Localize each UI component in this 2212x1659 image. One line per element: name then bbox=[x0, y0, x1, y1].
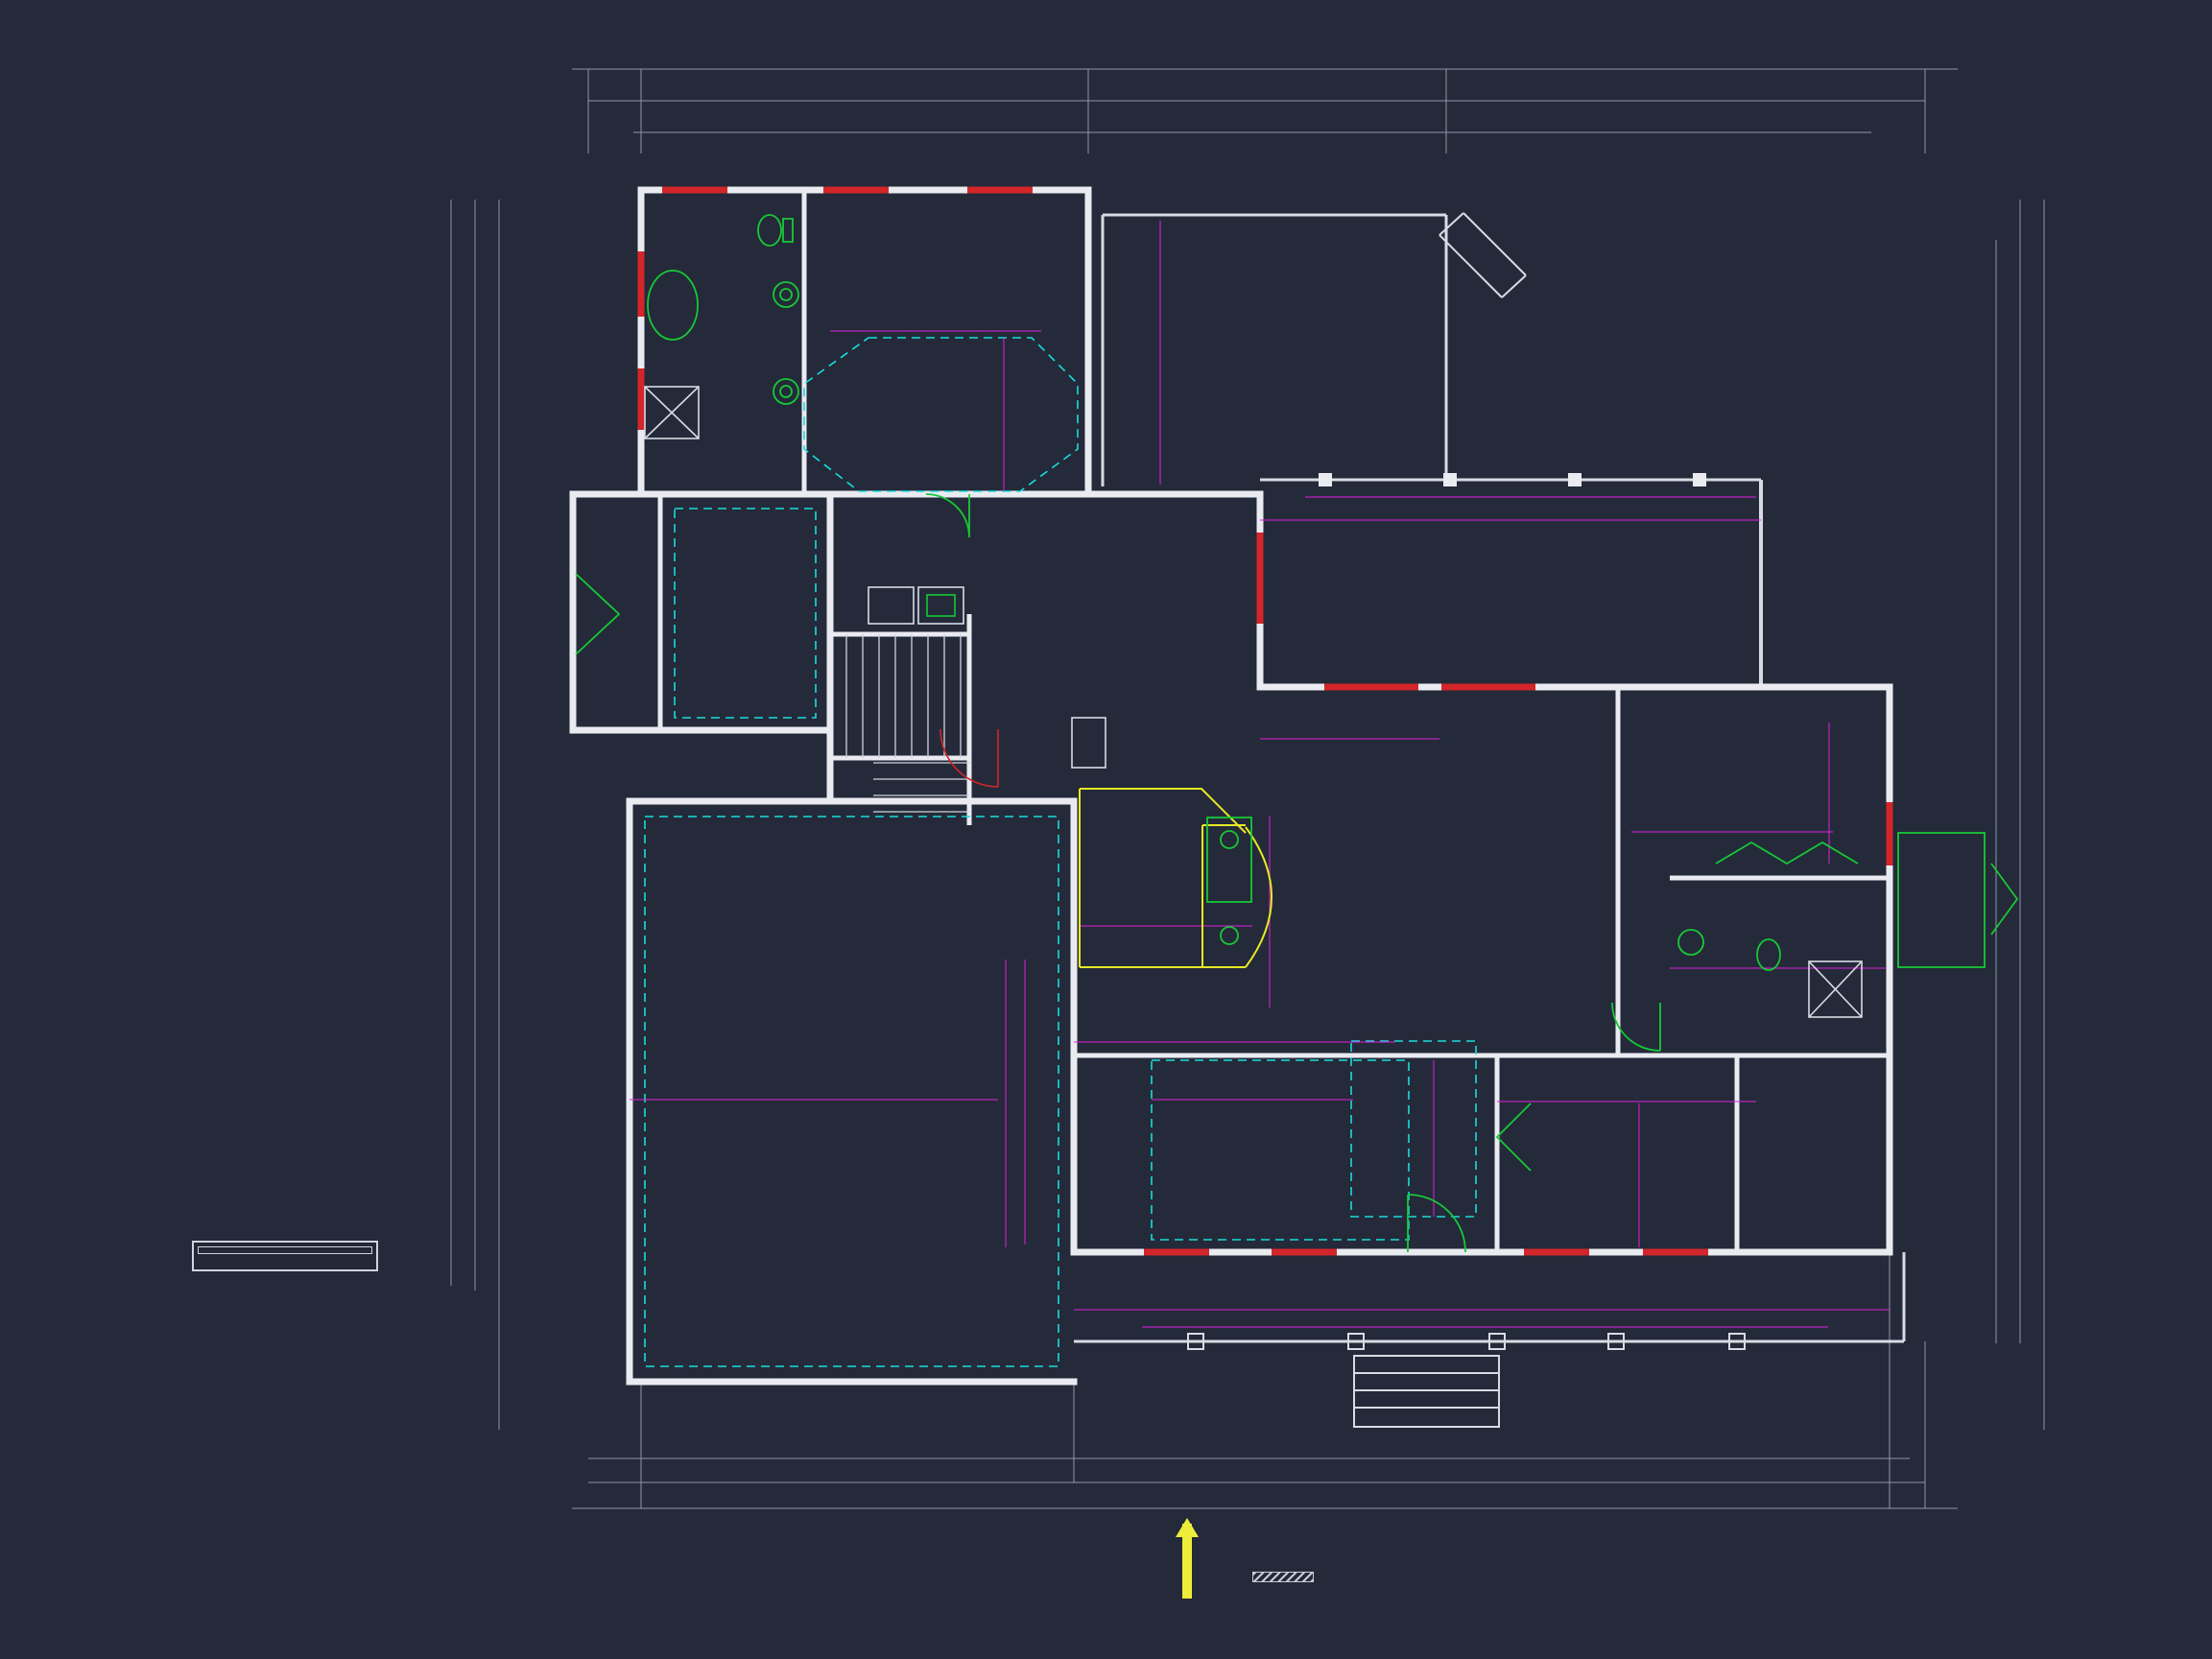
front-arrow-icon bbox=[1182, 1524, 1192, 1599]
blueprint-sheet bbox=[0, 0, 2212, 1659]
square-footage-title bbox=[198, 1246, 372, 1254]
square-footage-table bbox=[192, 1241, 378, 1271]
square-footage-rows bbox=[194, 1258, 376, 1269]
load-bearing-hatch-icon bbox=[1252, 1572, 1314, 1582]
room-label-layer bbox=[0, 0, 2212, 1659]
